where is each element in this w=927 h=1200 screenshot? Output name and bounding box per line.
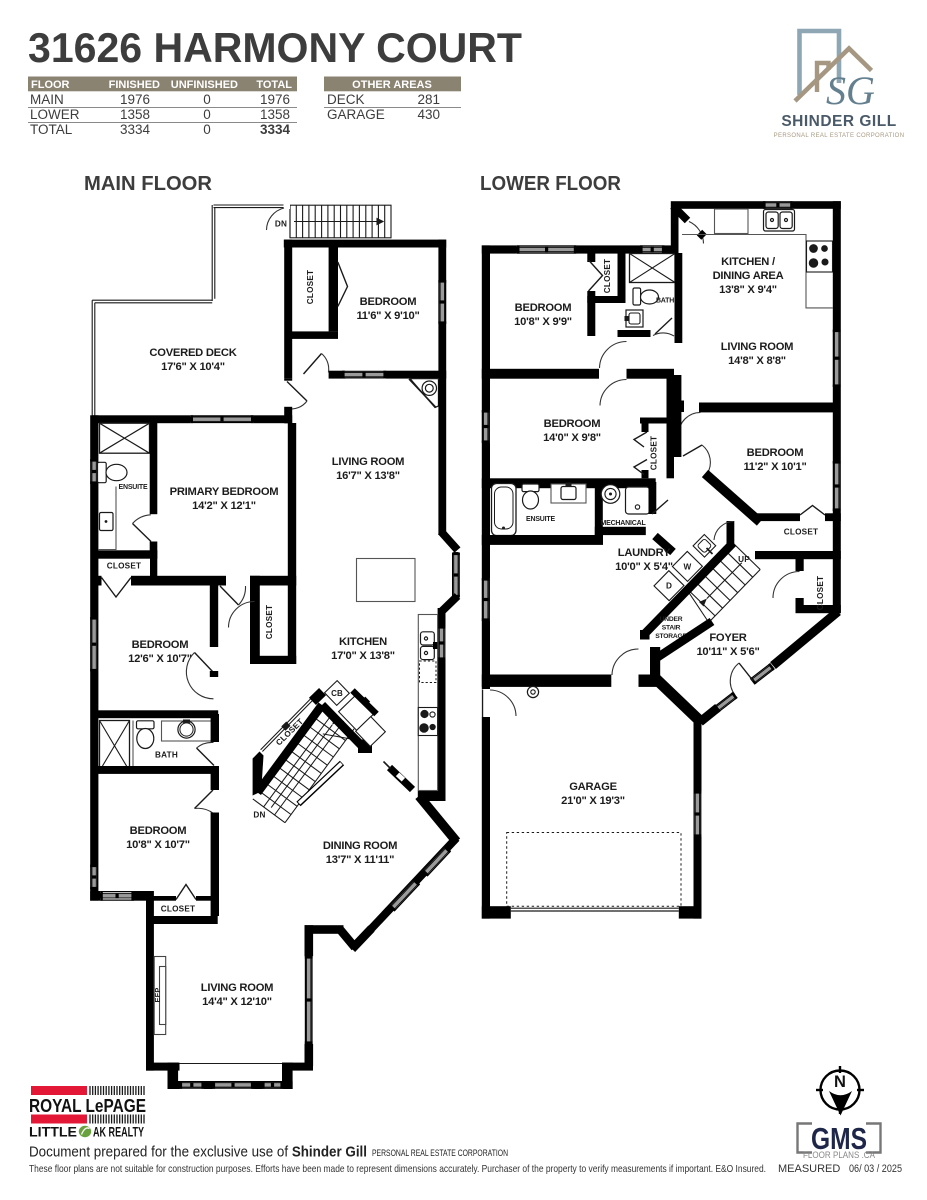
svg-text:KITCHEN: KITCHEN: [339, 636, 387, 648]
svg-text:TOTAL: TOTAL: [30, 122, 73, 137]
svg-text:CLOSET: CLOSET: [816, 576, 825, 610]
svg-text:CLOSET: CLOSET: [650, 436, 659, 470]
svg-text:GARAGE: GARAGE: [327, 107, 385, 122]
svg-text:LOWER: LOWER: [30, 107, 80, 122]
svg-text:CLOSET: CLOSET: [107, 562, 141, 571]
svg-text:PERSONAL REAL ESTATE CORPORATI: PERSONAL REAL ESTATE CORPORATION: [774, 133, 905, 139]
svg-text:COVERED DECK: COVERED DECK: [149, 347, 236, 359]
svg-text:SG: SG: [826, 68, 875, 113]
svg-text:LITTLE: LITTLE: [29, 1124, 77, 1140]
svg-text:3334: 3334: [260, 122, 291, 137]
svg-text:TOTAL: TOTAL: [256, 79, 292, 91]
svg-text:DINING ROOM: DINING ROOM: [323, 840, 397, 852]
svg-text:STAIR: STAIR: [662, 625, 681, 632]
svg-text:1976: 1976: [120, 92, 150, 107]
svg-text:SHINDER GILL: SHINDER GILL: [781, 113, 896, 130]
svg-text:0: 0: [203, 107, 211, 122]
svg-text:BEDROOM: BEDROOM: [544, 418, 601, 430]
svg-text:31626 HARMONY COURT: 31626 HARMONY COURT: [28, 24, 522, 71]
svg-text:UNFINISHED: UNFINISHED: [171, 79, 238, 91]
svg-text:1976: 1976: [260, 92, 290, 107]
svg-text:FOYER: FOYER: [709, 632, 746, 644]
svg-text:MAIN FLOOR: MAIN FLOOR: [84, 172, 212, 195]
svg-text:430: 430: [417, 107, 440, 122]
svg-text:LAUNDRY: LAUNDRY: [618, 547, 671, 559]
svg-text:FINISHED: FINISHED: [109, 79, 160, 91]
svg-text:ENSUITE: ENSUITE: [526, 516, 555, 523]
svg-text:CLOSET: CLOSET: [603, 259, 612, 293]
svg-text:14'2" X 12'1": 14'2" X 12'1": [192, 500, 256, 512]
svg-text:DN: DN: [253, 811, 265, 820]
svg-text:CLOSET: CLOSET: [306, 270, 315, 304]
svg-text:10'8" X 9'9": 10'8" X 9'9": [514, 316, 572, 328]
svg-text:LIVING ROOM: LIVING ROOM: [332, 456, 404, 468]
svg-text:LIVING ROOM: LIVING ROOM: [721, 341, 793, 353]
svg-text:PRIMARY BEDROOM: PRIMARY BEDROOM: [170, 486, 279, 498]
svg-text:MEASURED: MEASURED: [778, 1163, 840, 1175]
svg-text:14'0" X 9'8": 14'0" X 9'8": [543, 432, 601, 444]
svg-text:BATH: BATH: [656, 298, 674, 305]
svg-text:UNDER: UNDER: [660, 616, 683, 623]
svg-text:16'7" X 13'8": 16'7" X 13'8": [336, 470, 400, 482]
svg-text:UP: UP: [738, 555, 750, 564]
svg-text:14'8" X 8'8": 14'8" X 8'8": [728, 355, 786, 367]
svg-text:D: D: [666, 582, 672, 591]
svg-text:W: W: [684, 562, 692, 571]
svg-text:CB: CB: [331, 689, 343, 698]
svg-text:1358: 1358: [120, 107, 150, 122]
svg-text:0: 0: [203, 122, 211, 137]
svg-text:PERSONAL REAL ESTATE CORPORATI: PERSONAL REAL ESTATE CORPORATION: [372, 1148, 508, 1158]
svg-text:LOWER FLOOR: LOWER FLOOR: [480, 172, 621, 195]
svg-text:FLOOR: FLOOR: [31, 79, 70, 91]
svg-text:1358: 1358: [260, 107, 290, 122]
svg-text:BEDROOM: BEDROOM: [515, 302, 572, 314]
svg-text:BEDROOM: BEDROOM: [747, 447, 804, 459]
svg-text:DINING AREA: DINING AREA: [713, 270, 784, 282]
svg-text:GARAGE: GARAGE: [569, 781, 617, 793]
svg-text:17'0" X 13'8": 17'0" X 13'8": [331, 650, 395, 662]
svg-text:14'4" X 12'10": 14'4" X 12'10": [202, 996, 272, 1008]
svg-text:10'8" X 10'7": 10'8" X 10'7": [126, 839, 190, 851]
svg-text:CLOSET: CLOSET: [784, 528, 818, 537]
svg-text:FLOOR PLANS .CA: FLOOR PLANS .CA: [803, 1150, 875, 1160]
svg-text:These floor plans are not suit: These floor plans are not suitable for c…: [29, 1164, 766, 1175]
svg-text:N: N: [834, 1073, 846, 1091]
svg-text:EFP: EFP: [153, 988, 162, 1003]
svg-text:11'2" X 10'1": 11'2" X 10'1": [743, 461, 806, 473]
svg-text:21'0" X 19'3": 21'0" X 19'3": [561, 795, 625, 807]
svg-text:12'6" X 10'7": 12'6" X 10'7": [128, 653, 192, 665]
svg-text:17'6" X 10'4": 17'6" X 10'4": [161, 361, 225, 373]
svg-text:281: 281: [417, 92, 440, 107]
svg-text:13'8" X 9'4": 13'8" X 9'4": [719, 284, 777, 296]
svg-text:11'6" X 9'10": 11'6" X 9'10": [356, 310, 419, 322]
svg-text:LIVING ROOM: LIVING ROOM: [201, 982, 273, 994]
svg-text:AK REALTY: AK REALTY: [93, 1124, 144, 1140]
svg-text:3334: 3334: [120, 122, 151, 137]
svg-text:BEDROOM: BEDROOM: [130, 825, 187, 837]
svg-text:KITCHEN /: KITCHEN /: [721, 256, 775, 268]
svg-text:CLOSET: CLOSET: [265, 605, 274, 639]
svg-text:06/ 03 / 2025: 06/ 03 / 2025: [849, 1163, 902, 1175]
svg-text:OTHER AREAS: OTHER AREAS: [352, 79, 432, 91]
svg-text:13'7" X 11'11": 13'7" X 11'11": [326, 854, 394, 866]
svg-text:CLOSET: CLOSET: [161, 905, 195, 914]
svg-text:BATH: BATH: [155, 751, 178, 760]
svg-text:BEDROOM: BEDROOM: [360, 296, 417, 308]
svg-text:DECK: DECK: [327, 92, 365, 107]
svg-text:MECHANICAL: MECHANICAL: [600, 520, 646, 527]
svg-text:DN: DN: [275, 220, 287, 229]
svg-text:ROYAL LePAGE: ROYAL LePAGE: [29, 1096, 146, 1116]
svg-text:10'11" X 5'6": 10'11" X 5'6": [696, 646, 759, 658]
svg-text:ENSUITE: ENSUITE: [119, 484, 148, 491]
svg-text:0: 0: [203, 92, 211, 107]
svg-text:10'0" X 5'4": 10'0" X 5'4": [615, 561, 673, 573]
svg-text:BEDROOM: BEDROOM: [132, 639, 189, 651]
svg-text:Document prepared for the excl: Document prepared for the exclusive use …: [29, 1145, 367, 1161]
svg-text:MAIN: MAIN: [30, 92, 64, 107]
